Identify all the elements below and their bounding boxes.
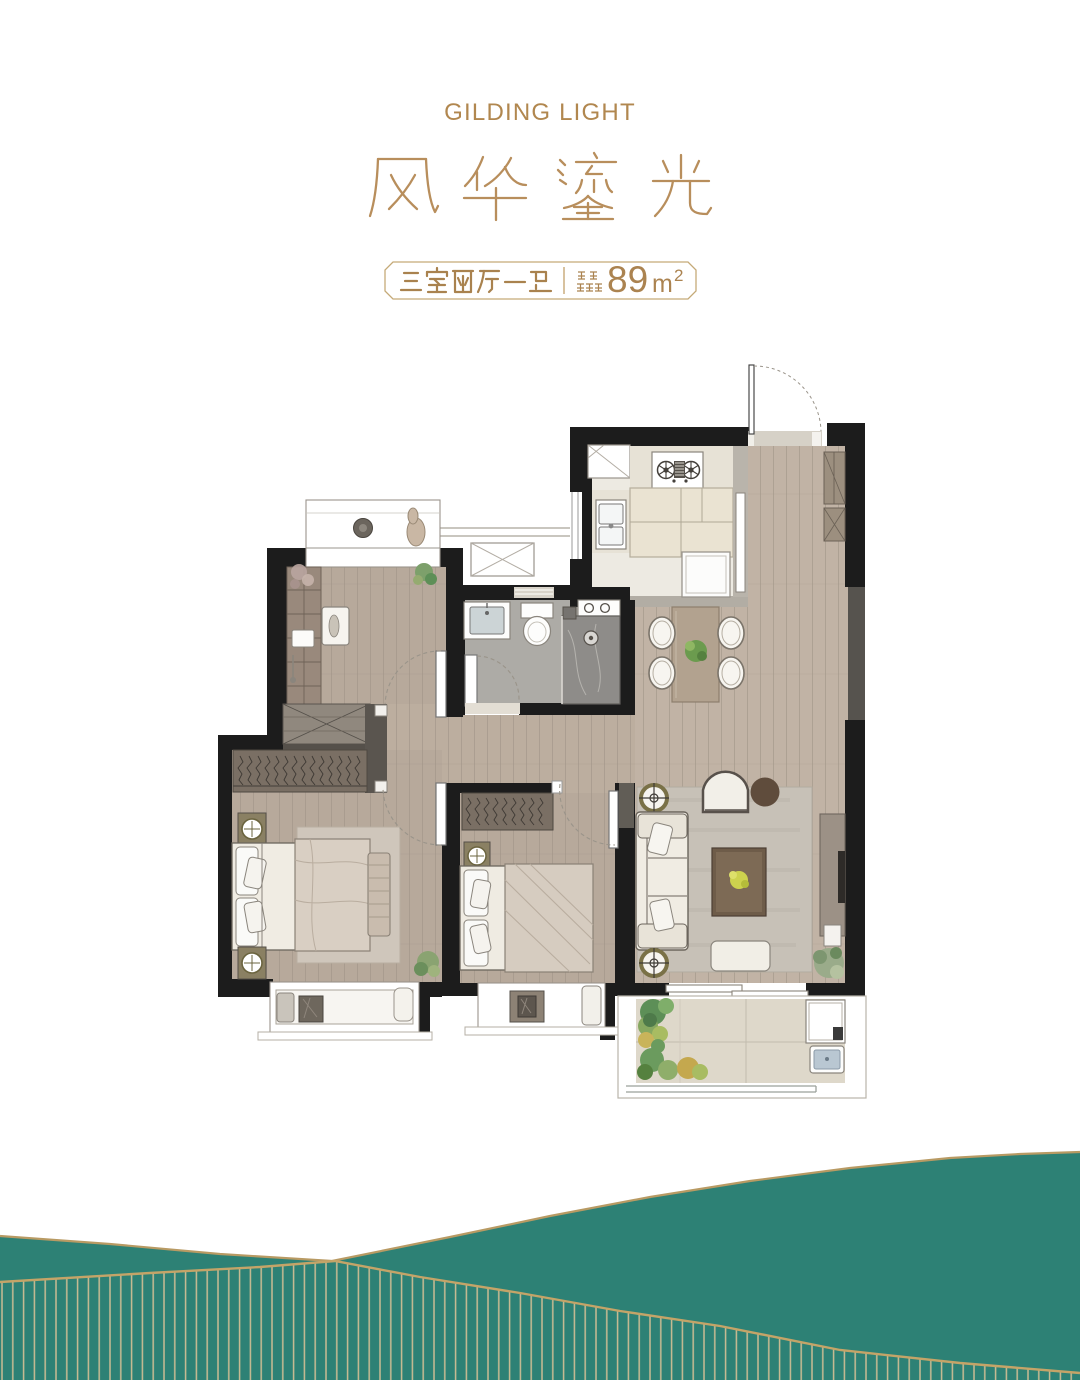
svg-text:89: 89: [607, 259, 648, 300]
svg-text:m: m: [652, 270, 673, 298]
svg-text:GILDING LIGHT: GILDING LIGHT: [444, 99, 636, 126]
svg-text:2: 2: [674, 266, 683, 285]
